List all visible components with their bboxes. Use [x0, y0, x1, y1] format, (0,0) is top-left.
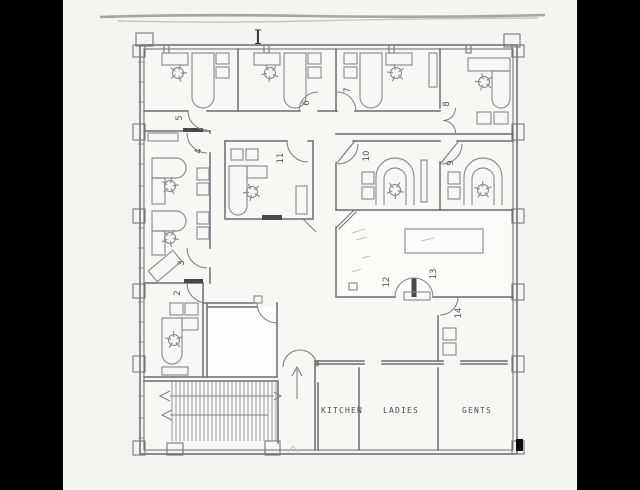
scan-blemish	[516, 439, 523, 451]
bright-room-floor	[207, 307, 277, 377]
room-number-2: 2	[173, 290, 183, 295]
room-number-9: 9	[446, 160, 456, 165]
room-number-5: 5	[175, 115, 185, 120]
ladies-label: LADIES	[383, 406, 419, 415]
named-room-labels: KITCHEN LADIES GENTS	[321, 406, 492, 415]
room-number-4: 4	[194, 148, 204, 153]
room-number-12: 12	[382, 277, 392, 288]
gents-label: GENTS	[462, 406, 492, 415]
room-number-7: 7	[343, 87, 353, 92]
scanned-floor-plan-page: I	[0, 0, 640, 490]
room-number-8: 8	[442, 101, 452, 106]
corner-pilaster	[136, 33, 153, 46]
scan-artifact-line	[100, 15, 545, 22]
room-number-3: 3	[177, 260, 187, 265]
room-number-10: 10	[362, 151, 372, 162]
room-number-14: 14	[454, 308, 464, 319]
kitchen-label: KITCHEN	[321, 406, 363, 415]
room-number-13: 13	[429, 269, 439, 280]
floor-plan-drawing: I	[0, 0, 640, 490]
room-number-11: 11	[276, 153, 286, 164]
room-number-6: 6	[302, 100, 312, 105]
